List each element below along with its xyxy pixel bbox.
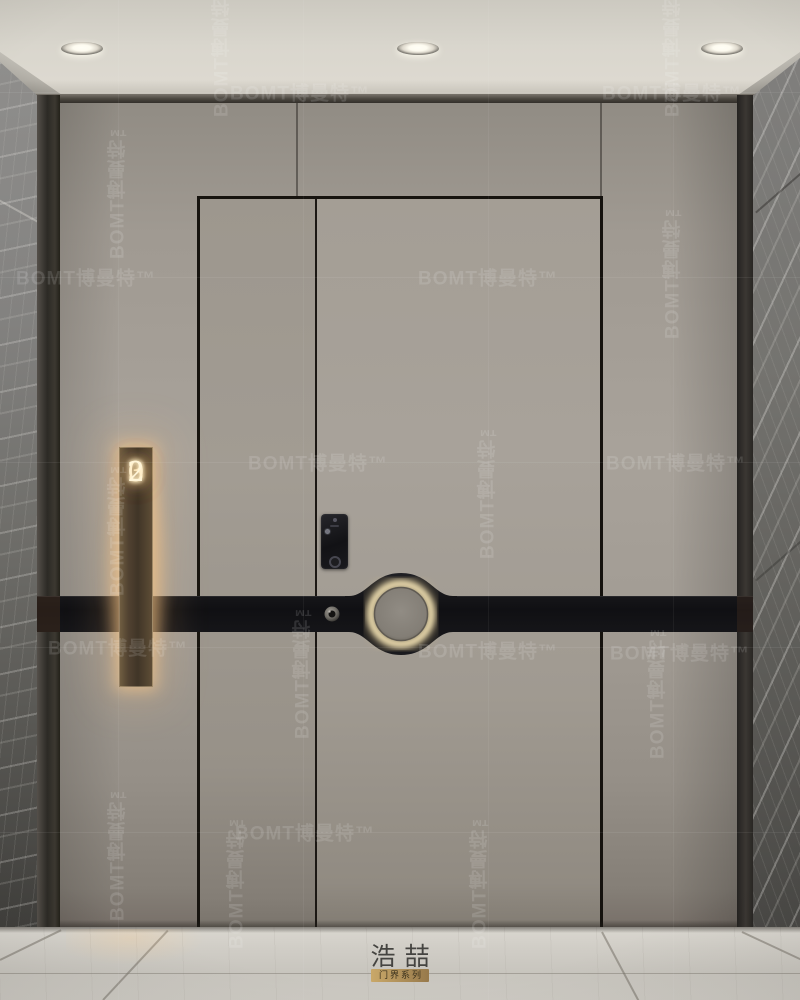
room-number-plaque: 302	[119, 447, 153, 687]
marble-wall-left	[0, 62, 37, 960]
recessed-downlight	[397, 42, 439, 55]
door-side-panel	[200, 199, 315, 927]
smart-lock	[321, 514, 348, 569]
downlight-row	[0, 0, 800, 103]
recessed-downlight	[701, 42, 743, 55]
marble-tile-seam	[755, 165, 800, 214]
fingerprint-reader-icon	[329, 556, 341, 568]
band-over-left-trim	[37, 596, 60, 632]
brand-logo: 浩喆	[0, 937, 800, 973]
band-over-right-trim	[737, 596, 753, 632]
keypad-dot	[326, 530, 329, 533]
room-number-digit: 2	[127, 458, 144, 487]
marble-wall-right	[753, 58, 800, 952]
series-label: 门界系列	[371, 969, 429, 982]
door-frame-right	[600, 196, 603, 927]
lock-keypad	[326, 530, 343, 554]
lock-speaker-icon	[330, 525, 339, 527]
marble-tile-seam	[755, 533, 800, 582]
recessed-downlight	[61, 42, 103, 55]
lock-camera-icon	[333, 518, 337, 522]
keyhole	[325, 607, 340, 622]
door-scene: 302 BOMT博曼特™BOMT博曼特™BOMT博曼特™BOMT博曼特™BOMT…	[0, 0, 800, 1000]
wall-trim-right	[737, 95, 753, 930]
wall-trim-left	[37, 95, 60, 947]
wall-panel-seam	[600, 103, 602, 197]
handle-center-disc	[375, 588, 428, 641]
door-leaf	[317, 199, 600, 927]
wall-panel-seam	[296, 103, 298, 197]
